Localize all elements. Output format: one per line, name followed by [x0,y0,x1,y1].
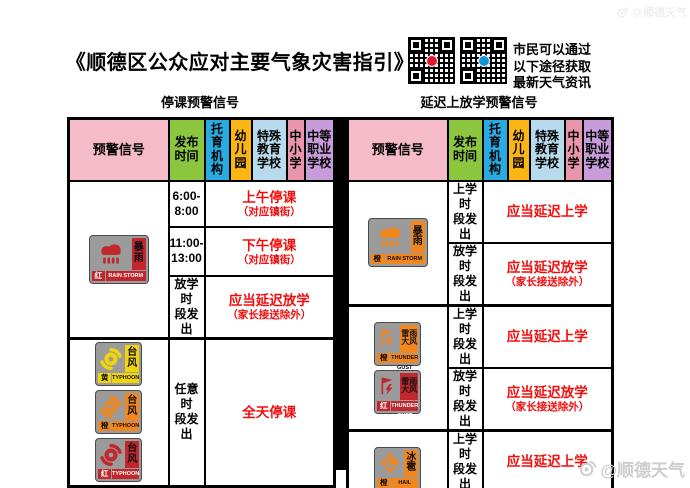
left-table-caption: 停课预警信号 [67,92,333,111]
header-nursery: 托 育 机 构 [483,119,508,181]
signal-name: 冰 雹 [404,450,418,477]
qr-finder-icon [461,38,475,52]
instruction-sub: （对应镇街） [206,254,334,266]
rainstorm-red-warning-icon: 暴 雨 红 RAIN STORM [89,235,149,284]
time-cell: 放学时 段发出 [169,276,205,339]
header-special-education-school: 特殊 教育 学校 [530,119,565,181]
signal-level: 黄 [98,373,111,383]
typhoon-yellow-warning-icon: 台 风 黄 TYPHOON [95,342,142,386]
weibo-logo-icon [426,55,438,67]
signal-english-name: TYPHOON [112,421,139,431]
header-warning-signal: 预警信号 [348,119,448,181]
instruction-cell: 应当延迟上学 [483,181,613,243]
instruction-main: 下午停课 [206,237,334,254]
signal-english-name: THUNDER GUST [391,401,418,411]
rainstorm-pictogram-icon [92,238,131,270]
instruction-main: 应当延迟上学 [484,203,612,220]
header-issue-time: 发布 时间 [169,119,205,181]
class-suspension-table: 预警信号 发布 时间 托 育 机 构 幼 儿 园 特殊 教育 学校 中 小 学 … [67,117,336,488]
instruction-sub: （家长接送除外） [484,276,612,288]
instruction-sub: （家长接送除外） [484,401,612,413]
header-primary-secondary-school: 中 小 学 [565,119,583,181]
header-vocational-school: 中等 职业 学校 [583,119,613,181]
time-cell: 上学时 段发出 [448,305,483,368]
poster-page: 《顺德区公众应对主要气象灾害指引》 市民可以通过 以下途径获取 最新天气资讯 停… [0,0,690,488]
instruction-cell: 应当延迟上学 [483,305,613,368]
signal-name: 雷雨 大风 [400,325,418,352]
instruction-main: 应当延迟放学 [484,259,612,276]
header-warning-signal: 预警信号 [69,119,169,181]
hail-pictogram-icon [377,450,403,477]
weibo-watermark-faint: @顺德天气 [616,4,687,20]
qr-finder-icon [409,69,423,83]
typhoon-red-warning-icon: 台 风 红 TYPHOON [95,438,142,482]
page-title: 《顺德区公众应对主要气象灾害指引》 [58,46,422,75]
qr-finder-icon [461,69,475,83]
weibo-watermark: @顺德天气 [578,456,685,481]
header-kindergarten: 幼 儿 园 [230,119,252,181]
qr-code-weibo [408,37,455,84]
header-nursery: 托 育 机 构 [205,119,230,181]
signal-english-name: TYPHOON [112,469,139,479]
instruction-cell: 上午停课 （对应镇街） [205,181,335,227]
signal-level: 橙 [98,421,111,431]
right-table-caption: 延迟上放学预警信号 [346,92,612,111]
time-cell: 11:00- 13:00 [169,227,205,276]
weibo-eye-icon [578,459,597,478]
signal-name: 台 风 [125,441,139,468]
instruction-main: 上午停课 [206,189,334,206]
signal-level: 橙 [371,254,384,264]
typhoon-pictogram-icon [98,393,124,420]
qr-finder-icon [409,38,423,52]
signal-cell-typhoon: 台 风 黄 TYPHOON 台 风 [69,338,169,486]
qr-finder-icon [492,38,506,52]
instruction-main: 应当延迟放学 [484,384,612,401]
header-kindergarten: 幼 儿 园 [508,119,530,181]
signal-name: 台 风 [125,345,139,372]
rainstorm-pictogram-icon [371,221,410,253]
time-cell: 放学时 段发出 [448,243,483,306]
signal-cell-hail: 冰 雹 橙 HAIL 冰 雹 [348,430,448,488]
signal-name: 雷雨 大风 [400,373,418,400]
instruction-cell: 应当延迟放学 （家长接送除外） [205,276,335,339]
hail-orange-warning-icon: 冰 雹 橙 HAIL [374,447,421,488]
header-special-education-school: 特殊 教育 学校 [252,119,287,181]
qr-finder-icon [440,38,454,52]
delayed-school-table: 预警信号 发布 时间 托 育 机 构 幼 儿 园 特殊 教育 学校 中 小 学 … [346,117,614,488]
instruction-sub: （对应镇街） [206,206,334,218]
app-logo-icon [478,55,490,67]
qr-code-wechat [460,37,507,84]
weibo-eye-icon [616,6,629,19]
time-cell: 上学时 段发出 [448,181,483,243]
thundergust-pictogram-icon [377,325,399,352]
time-cell: 上学时 段发出 [448,430,483,488]
time-cell: 任意时 段发出 [169,338,205,486]
instruction-main: 全天停课 [206,404,334,421]
typhoon-pictogram-icon [98,441,124,468]
instruction-cell: 下午停课 （对应镇街） [205,227,335,276]
signal-name: 暴 雨 [132,238,146,270]
signal-english-name: THUNDER GUST [391,353,418,363]
watermark-text: @顺德天气 [600,456,685,481]
signal-english-name: RAIN STORM [385,254,425,264]
watermark-text: @顺德天气 [632,4,687,20]
signal-level: 橙 [377,353,390,363]
instruction-main: 应当延迟上学 [484,328,612,345]
qr-note-text: 市民可以通过 以下途径获取 最新天气资讯 [513,42,591,92]
signal-name: 暴 雨 [411,221,425,253]
thundergust-red-warning-icon: 雷雨 大风 红 THUNDER GUST [374,370,421,414]
rainstorm-orange-warning-icon: 暴 雨 橙 RAIN STORM [368,218,428,267]
signal-cell-thundergust: 雷雨 大风 橙 THUNDER GUST 雷雨 大风 [348,305,448,430]
qr-code-group [408,37,507,84]
instruction-cell: 应当延迟放学 （家长接送除外） [483,243,613,306]
signal-english-name: RAIN STORM [106,271,146,281]
typhoon-pictogram-icon [98,345,124,372]
header-issue-time: 发布 时间 [448,119,483,181]
signal-level: 红 [92,271,105,281]
header-vocational-school: 中等 职业 学校 [305,119,335,181]
signal-english-name: TYPHOON [112,373,139,383]
instruction-sub: （家长接送除外） [206,309,334,321]
signal-level: 红 [98,469,111,479]
signal-cell-rainstorm-red: 暴 雨 红 RAIN STORM [69,181,169,339]
instruction-main: 应当延迟放学 [206,292,334,309]
header-primary-secondary-school: 中 小 学 [287,119,305,181]
signal-level: 红 [377,401,390,411]
signal-cell-rainstorm-orange: 暴 雨 橙 RAIN STORM [348,181,448,306]
time-cell: 放学时 段发出 [448,368,483,431]
signal-english-name: HAIL [391,478,418,488]
instruction-cell: 应当延迟放学 （家长接送除外） [483,368,613,431]
typhoon-orange-warning-icon: 台 风 橙 TYPHOON [95,390,142,434]
thundergust-orange-warning-icon: 雷雨 大风 橙 THUNDER GUST [374,322,421,366]
signal-level: 橙 [377,478,390,488]
time-cell: 6:00- 8:00 [169,181,205,227]
signal-name: 台 风 [125,393,139,420]
thundergust-pictogram-icon [377,373,399,400]
instruction-cell: 全天停课 [205,338,335,486]
